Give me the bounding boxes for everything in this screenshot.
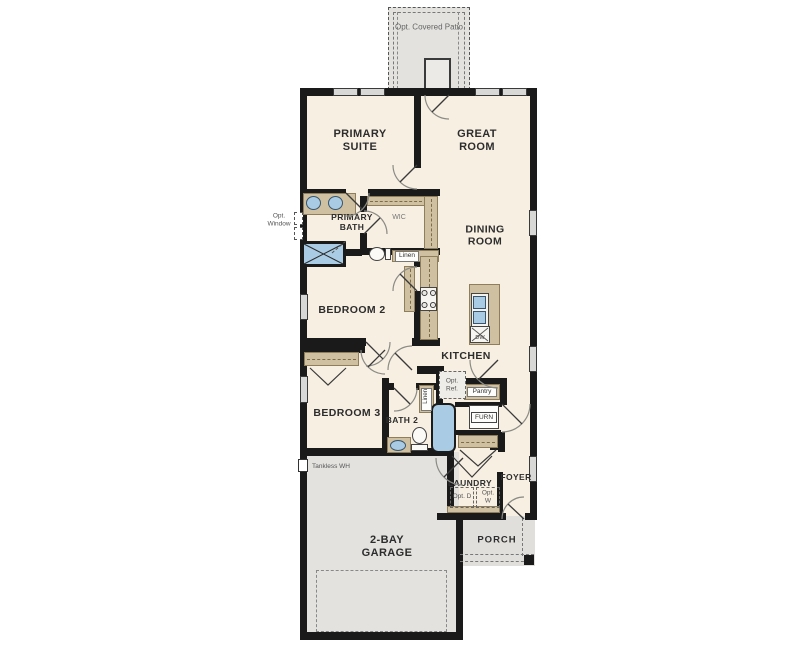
kitchen-label: KITCHEN [441,350,490,362]
shower [301,241,346,267]
bath2-toilet-tank [411,444,428,451]
wall-suite-south-r [368,189,440,196]
opt-w-label: Opt. W [478,489,498,504]
porch-dashed-bottom-2 [460,561,534,563]
wall-garage-right [456,513,463,640]
bath2-sink [390,440,406,451]
garage-bay-outline [316,570,447,632]
bedroom3-label: BEDROOM 3 [313,407,380,419]
dining-room-label: DINING ROOM [458,224,513,249]
window-right-2 [529,346,537,372]
range-stove [420,287,437,311]
opt-d-label: Opt. D [452,493,472,501]
bath2-toilet-bowl [412,427,427,444]
pantry-label: Pantry [467,387,497,397]
wall-garage-bottom [300,632,463,640]
wall-bath2-north-l [382,383,394,390]
window-top-3 [475,88,500,96]
foyer-label: FOYER [500,472,531,482]
primary-toilet-bowl [369,247,385,261]
primary-toilet-tank [385,248,391,260]
porch-label: PORCH [477,534,516,545]
furnace-label: FURN [471,412,497,423]
furnace-box: FURN [469,405,499,429]
wic-label: WIC [392,214,406,222]
opt-window-pane-2 [294,227,303,240]
coat-closet-shelf [458,435,498,448]
patio-door-landing [424,58,451,90]
wall-right [530,88,537,513]
island-sink-bowl-1 [473,296,486,309]
porch-column [524,555,534,565]
wall-bath-wic-n [360,196,367,212]
window-right-1 [529,210,537,236]
window-left-bed3 [300,376,308,403]
dw-label: DW [475,335,484,341]
opt-ref-label: Opt. Ref. [440,377,464,392]
laundry-label: LAUNDRY [448,478,492,488]
window-left-bed2 [300,294,308,320]
bedroom2-closet [404,266,415,312]
primary-sink-left [306,196,321,210]
wall-entry-bottom-right [525,513,537,520]
window-top-2 [360,88,385,96]
tankless-wh-unit [298,459,308,472]
wall-suite-greatroom [414,96,421,168]
bathtub [431,403,456,453]
wall-entry-bottom-left [437,513,506,520]
floor-plan: FURN Opt. Covered Patio PRIMARY SUITE GR… [0,0,810,648]
primary-sink-right [328,196,343,210]
garage-label: 2-BAY GARAGE [354,534,420,560]
porch-dashed-bottom-1 [460,554,534,556]
bath2-label: BATH 2 [385,415,419,425]
wic-shelf-right [424,196,438,249]
primary-bath-label: PRIMARY BATH [322,212,382,232]
linen-lower-label: Linen [421,388,432,411]
bedroom3-closet-shelf [304,352,359,366]
opt-window-label: Opt. Window [261,212,297,227]
great-room-label: GREAT ROOM [447,128,507,154]
tankless-wh-label: Tankless WH [309,463,353,471]
window-top-4 [502,88,527,96]
linen-upper-label: Linen [395,251,419,262]
linen-lower-text: Linen [423,389,430,404]
patio-label: Opt. Covered Patio [394,22,464,31]
primary-suite-label: PRIMARY SUITE [320,128,400,154]
bedroom2-label: BEDROOM 2 [318,304,385,316]
porch-dashed-right [522,518,524,556]
window-top-1 [333,88,358,96]
island-sink-bowl-2 [473,311,486,324]
wic-shelf-top [367,196,425,206]
